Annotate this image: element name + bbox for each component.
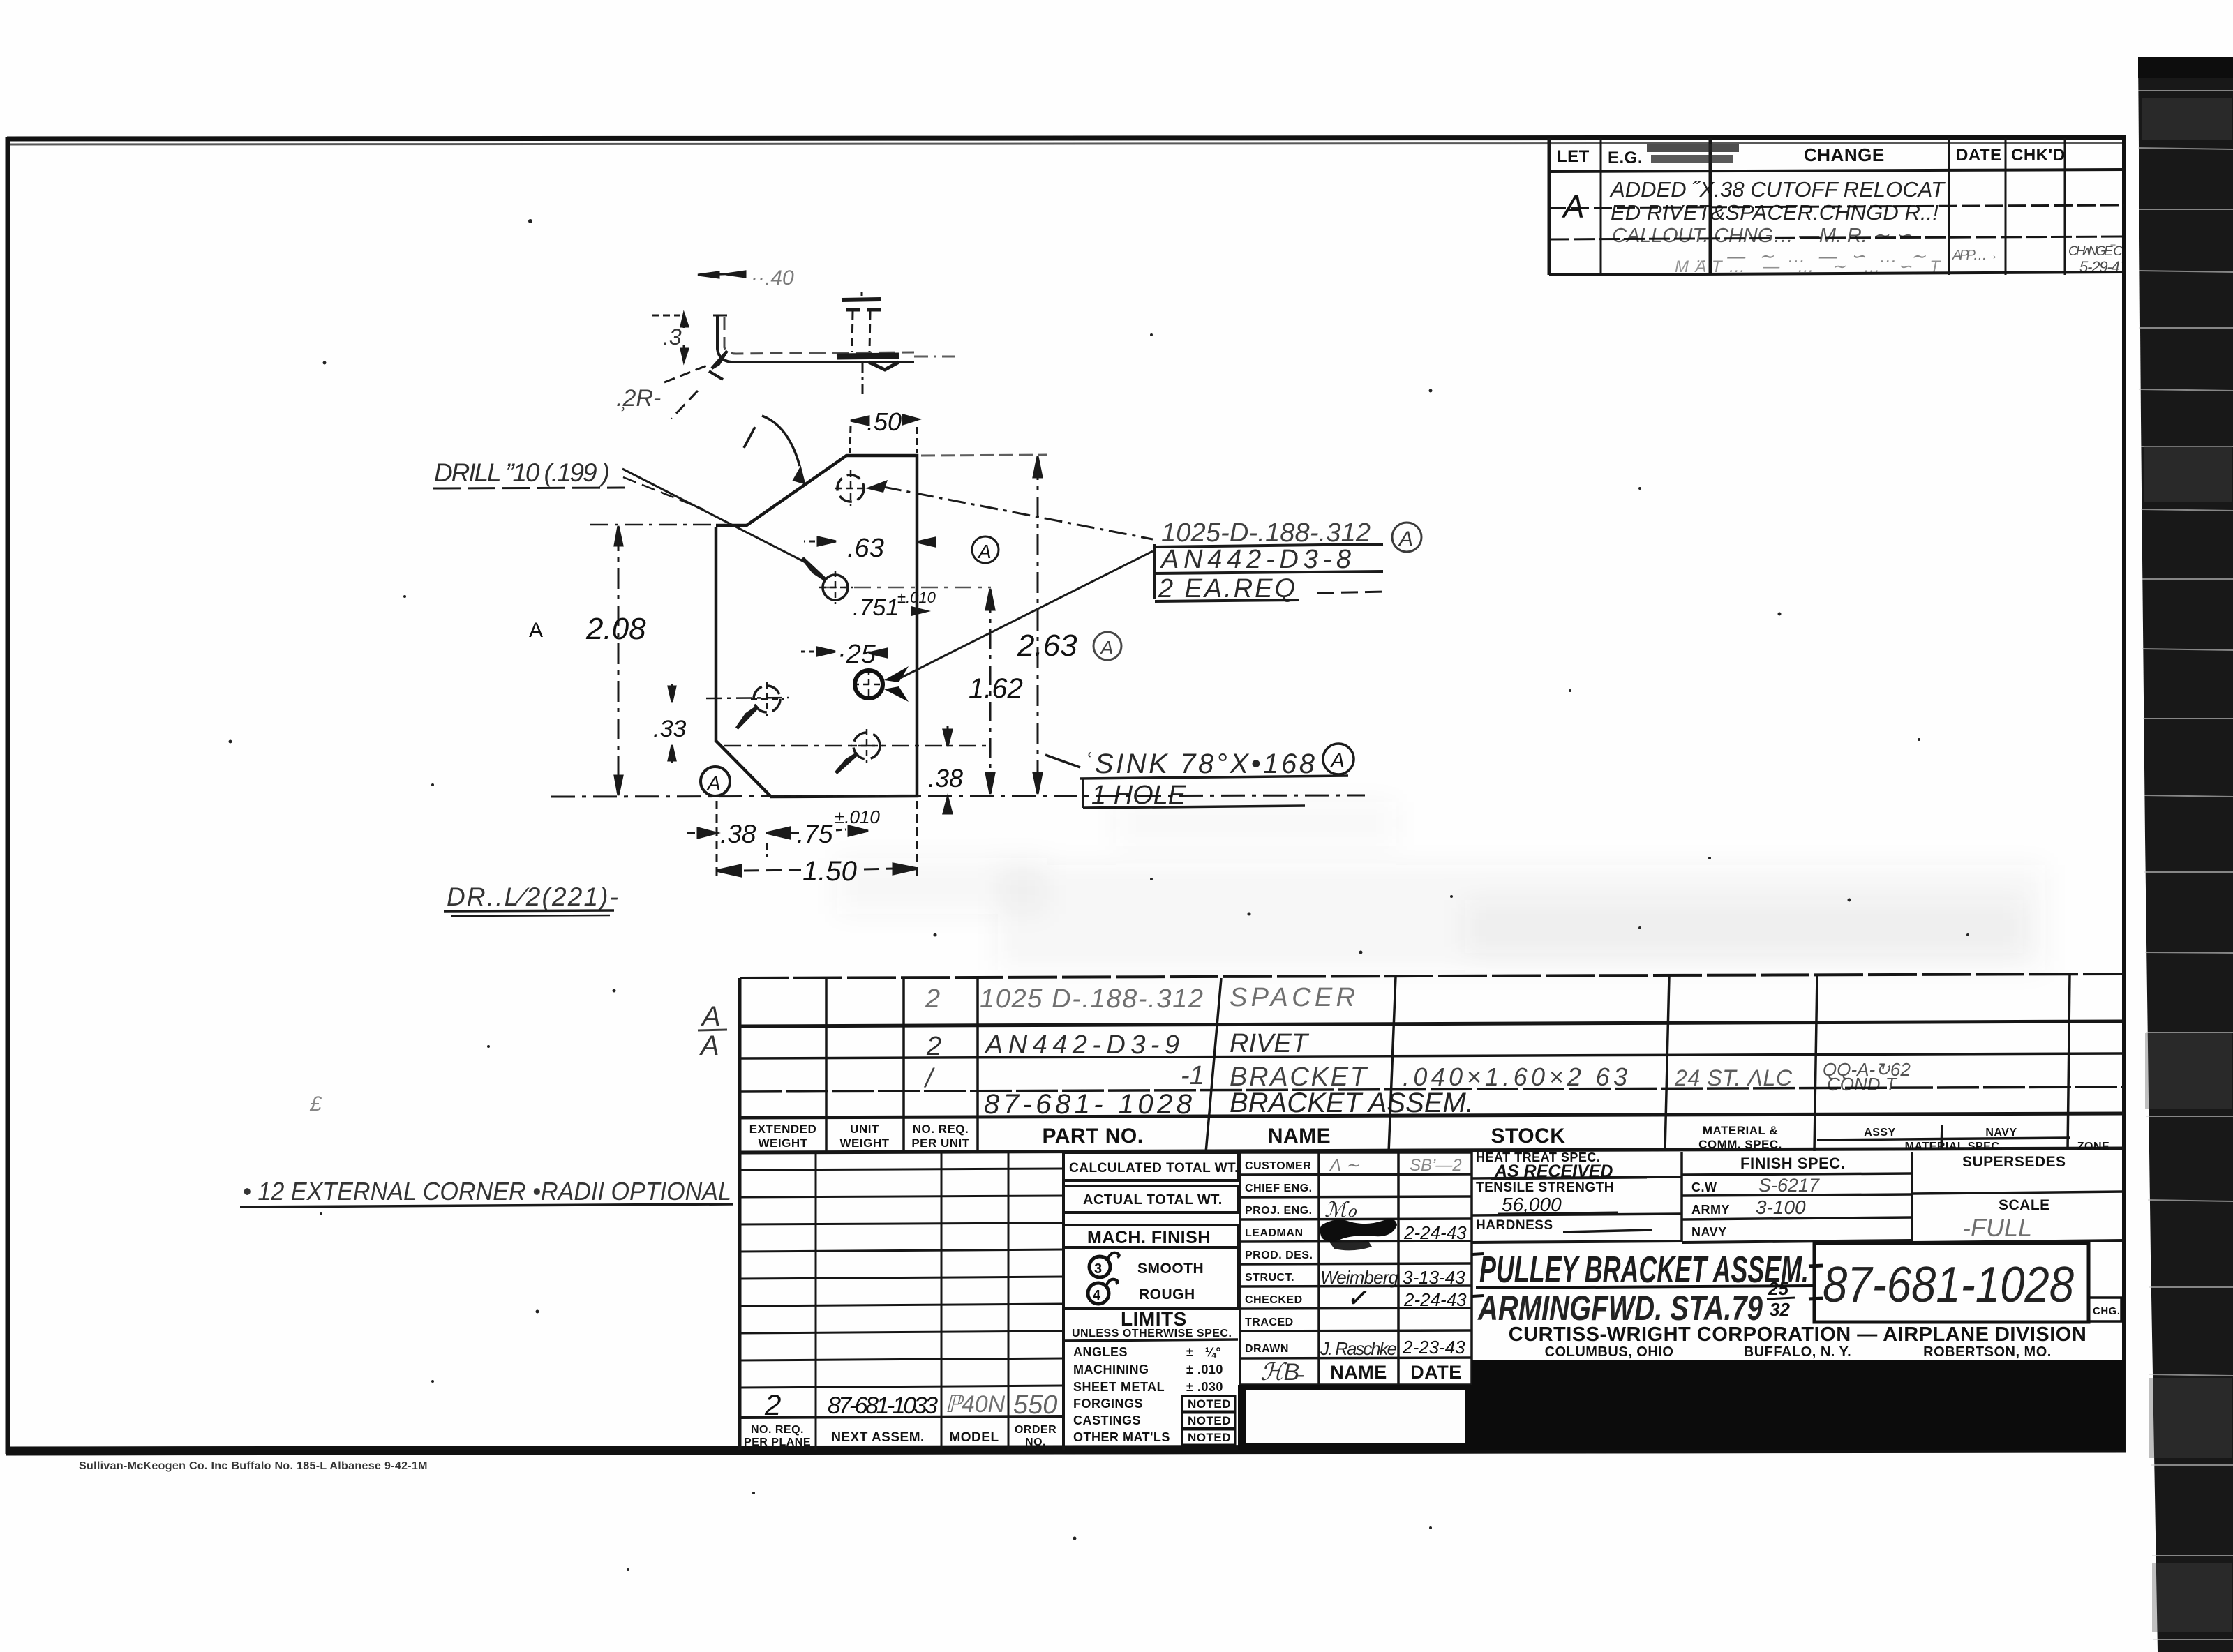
svg-text:A: A <box>699 1030 719 1061</box>
svg-text:.75: .75 <box>797 820 833 848</box>
svg-text:COND T: COND T <box>1827 1074 1898 1095</box>
svg-text:1025 D-.188-.312: 1025 D-.188-.312 <box>980 984 1203 1014</box>
svg-text:ANGLES: ANGLES <box>1073 1345 1128 1359</box>
svg-text:NO. REQ.: NO. REQ. <box>751 1424 804 1436</box>
svg-text:2.08: 2.08 <box>585 612 646 646</box>
svg-text:LIMITS: LIMITS <box>1121 1308 1187 1330</box>
svg-text:BRACKET ASSEM.: BRACKET ASSEM. <box>1230 1088 1474 1118</box>
svg-text:PROD. DES.: PROD. DES. <box>1245 1249 1313 1261</box>
svg-text:··.40: ··.40 <box>751 266 794 290</box>
svg-text:FORGINGS: FORGINGS <box>1073 1397 1143 1411</box>
svg-text:A: A <box>1398 527 1413 550</box>
svg-text:2-23-43: 2-23-43 <box>1402 1337 1465 1358</box>
svg-text:5-29-4ʿ: 5-29-4ʿ <box>2079 258 2124 276</box>
svg-text:ARMY: ARMY <box>1691 1203 1730 1217</box>
svg-text:A: A <box>1561 188 1585 225</box>
svg-text:MAT… — … ∼ … ∽ T: MAT… — … ∼ … ∽ T <box>1675 257 1941 276</box>
svg-text:SCALE: SCALE <box>1999 1197 2050 1213</box>
svg-text:550: 550 <box>1013 1390 1057 1420</box>
svg-text:ℙ40N: ℙ40N <box>945 1391 1006 1418</box>
svg-text:SMOOTH: SMOOTH <box>1137 1261 1204 1277</box>
svg-text:3-100: 3-100 <box>1756 1196 1806 1218</box>
svg-text:CHʌNGE‾C: CHʌNGE‾C <box>2068 244 2123 259</box>
svg-text:A: A <box>1329 749 1345 772</box>
svg-text:S-6217: S-6217 <box>1758 1175 1820 1196</box>
svg-text:HARDNESS: HARDNESS <box>1476 1218 1553 1233</box>
svg-text:J. Raschke: J. Raschke <box>1320 1338 1397 1359</box>
svg-text:DATE: DATE <box>1410 1362 1462 1383</box>
svg-text:Λ ∼: Λ ∼ <box>1329 1156 1359 1175</box>
svg-text:PER PLANE: PER PLANE <box>744 1436 811 1448</box>
svg-text:1025-D-.188-.312: 1025-D-.188-.312 <box>1161 518 1371 548</box>
svg-text:PER UNIT: PER UNIT <box>911 1136 969 1150</box>
svg-text:2-24-43: 2-24-43 <box>1403 1222 1467 1243</box>
svg-text:ACTUAL TOTAL WT.: ACTUAL TOTAL WT. <box>1083 1192 1223 1208</box>
svg-text:NAME: NAME <box>1268 1125 1331 1148</box>
svg-text:± ¼°: ± ¼° <box>1186 1345 1221 1359</box>
svg-text:2.63: 2.63 <box>1017 629 1077 663</box>
svg-text:.33: .33 <box>653 716 686 742</box>
svg-text:56,000: 56,000 <box>1502 1194 1562 1215</box>
svg-text:A: A <box>701 1001 721 1032</box>
svg-text:MATERIAL SPEC.: MATERIAL SPEC. <box>1905 1141 2003 1152</box>
svg-text:‐1: ‐1 <box>1181 1061 1204 1090</box>
svg-text:A: A <box>977 541 992 562</box>
svg-text:DATE: DATE <box>1956 146 2002 165</box>
svg-text:.̹2R‐: .̹2R‐ <box>616 385 661 412</box>
svg-text:CASTINGS: CASTINGS <box>1073 1413 1141 1427</box>
svg-text:UNLESS OTHERWISE SPEC.: UNLESS OTHERWISE SPEC. <box>1072 1328 1232 1339</box>
svg-text:RIVET: RIVET <box>1230 1029 1310 1058</box>
svg-text:.3: .3 <box>663 324 682 350</box>
svg-text:SΒ’—2: SΒ’—2 <box>1410 1156 1462 1175</box>
svg-text:BUFFALO, N. Y.: BUFFALO, N. Y. <box>1744 1344 1851 1360</box>
svg-text:87-681-1033: 87-681-1033 <box>828 1392 938 1419</box>
svg-text:COLUMBUS, OHIO: COLUMBUS, OHIO <box>1545 1344 1674 1360</box>
svg-text:AN442-D3-8: AN442-D3-8 <box>1160 545 1351 574</box>
svg-text:DRILL ”10 (.199 ): DRILL ”10 (.199 ) <box>434 458 610 487</box>
svg-text:87-681-1028: 87-681-1028 <box>1823 1257 2074 1313</box>
svg-text:NAME: NAME <box>1330 1362 1387 1383</box>
svg-text:C.W: C.W <box>1691 1180 1717 1194</box>
svg-text:2: 2 <box>925 984 940 1014</box>
svg-text:NEXT ASSEM.: NEXT ASSEM. <box>831 1430 925 1445</box>
svg-text:‐FULL: ‐FULL <box>1962 1213 2032 1242</box>
svg-text:.751: .751 <box>853 594 899 621</box>
svg-text:TRACED: TRACED <box>1245 1316 1294 1328</box>
svg-text:✓: ✓ <box>1347 1285 1367 1312</box>
svg-text:32: 32 <box>1770 1299 1790 1320</box>
svg-text:NOTED: NOTED <box>1188 1397 1231 1411</box>
svg-text:.50: .50 <box>867 407 902 436</box>
svg-text:.38: .38 <box>720 820 756 848</box>
svg-text:.38: .38 <box>928 764 963 793</box>
svg-text:87-681- 1028: 87-681- 1028 <box>984 1089 1193 1120</box>
svg-text:WEIGHT: WEIGHT <box>759 1136 808 1150</box>
svg-text:DR..L⁄2(221)‐: DR..L⁄2(221)‐ <box>447 883 618 911</box>
svg-text:A: A <box>706 772 721 794</box>
svg-text:A: A <box>1099 637 1114 659</box>
svg-text:EXTENDED: EXTENDED <box>749 1122 817 1136</box>
svg-text:25: 25 <box>1768 1278 1788 1299</box>
svg-text:MACH. FINISH: MACH. FINISH <box>1087 1228 1211 1247</box>
svg-text:CURTISS-WRIGHT CORPORATION — A: CURTISS-WRIGHT CORPORATION — AIRPLANE DI… <box>1509 1323 2087 1346</box>
svg-text:DRAWN: DRAWN <box>1245 1343 1289 1355</box>
svg-text:FINISH SPEC.: FINISH SPEC. <box>1740 1155 1845 1172</box>
svg-text:ORDER: ORDER <box>1015 1424 1056 1436</box>
svg-text:3-13-43: 3-13-43 <box>1403 1267 1465 1288</box>
svg-text:WEIGHT: WEIGHT <box>840 1136 890 1150</box>
svg-text:• 12 EXTERNAL CORNER •RADII OP: • 12 EXTERNAL CORNER •RADII OPTIONAL <box>243 1177 731 1206</box>
svg-text:NO.: NO. <box>1025 1436 1046 1448</box>
svg-text:± .010: ± .010 <box>1186 1362 1223 1376</box>
svg-text:CALCULATED TOTAL WT.: CALCULATED TOTAL WT. <box>1069 1161 1239 1176</box>
svg-text:ASSY: ASSY <box>1864 1127 1896 1139</box>
svg-text:£: £ <box>309 1092 322 1116</box>
svg-text:STRUCT.: STRUCT. <box>1245 1272 1294 1284</box>
svg-text:ZONE: ZONE <box>2077 1141 2109 1152</box>
svg-text:ROUGH: ROUGH <box>1139 1286 1195 1302</box>
svg-text:± .030: ± .030 <box>1186 1380 1223 1394</box>
svg-text:OTHER MAT'LS: OTHER MAT'LS <box>1073 1430 1170 1444</box>
svg-text:±.010: ±.010 <box>835 806 880 827</box>
svg-text:CALLOUT. CHNG… —M. R. ∼ ∽: CALLOUT. CHNG… —M. R. ∼ ∽ <box>1612 225 1912 247</box>
svg-text:APP…→: APP…→ <box>1952 248 1999 263</box>
svg-text:2: 2 <box>764 1388 781 1421</box>
svg-text:PART NO.: PART NO. <box>1042 1125 1143 1148</box>
svg-text:NAVY: NAVY <box>1691 1225 1727 1239</box>
svg-text:NOTED: NOTED <box>1188 1431 1231 1444</box>
svg-text:COMM. SPEC.: COMM. SPEC. <box>1698 1138 1782 1151</box>
svg-text:MATERIAL &: MATERIAL & <box>1703 1124 1778 1137</box>
svg-text:LET: LET <box>1557 147 1590 166</box>
svg-text:TENSILE STRENGTH: TENSILE STRENGTH <box>1476 1180 1614 1195</box>
svg-text:NO. REQ.: NO. REQ. <box>913 1122 969 1136</box>
svg-text:MACHINING: MACHINING <box>1073 1362 1149 1376</box>
svg-text:STOCK: STOCK <box>1491 1125 1566 1148</box>
svg-text:ADDED ˝X.38 CUTOFF RELOCAT: ADDED ˝X.38 CUTOFF RELOCAT <box>1609 177 1946 202</box>
svg-text:NAVY: NAVY <box>1985 1127 2017 1139</box>
svg-text:24 ST. ΛLC: 24 ST. ΛLC <box>1674 1065 1793 1090</box>
svg-text:ARMINGFWD. STA.79: ARMINGFWD. STA.79 <box>1477 1289 1763 1328</box>
svg-text:ROBERTSON, MO.: ROBERTSON, MO. <box>1923 1344 2052 1360</box>
svg-text:CHG.: CHG. <box>2093 1305 2121 1317</box>
svg-text:Sullivan-McKeogen Co. Inc B: Sullivan-McKeogen Co. Inc Buffalo No. 18… <box>79 1460 428 1472</box>
svg-text:E.G.: E.G. <box>1608 149 1643 167</box>
svg-text:AN442-D3-9: AN442-D3-9 <box>984 1030 1179 1060</box>
svg-text:CHK'D: CHK'D <box>2011 146 2066 165</box>
svg-text:PROJ. ENG.: PROJ. ENG. <box>1245 1205 1313 1217</box>
svg-text:1.62: 1.62 <box>969 673 1023 704</box>
svg-text:LEADMAN: LEADMAN <box>1245 1227 1304 1239</box>
svg-text:A: A <box>529 619 543 642</box>
svg-text:CHIEF ENG.: CHIEF ENG. <box>1245 1182 1313 1194</box>
svg-text:ℳℴ: ℳℴ <box>1324 1199 1357 1222</box>
svg-text:CHANGE: CHANGE <box>1804 144 1885 165</box>
svg-text:SHEET METAL: SHEET METAL <box>1073 1380 1165 1394</box>
svg-text:4: 4 <box>1093 1288 1101 1303</box>
svg-text:·25: ·25 <box>837 640 876 669</box>
svg-text:PULLEY BRACKET ASSEM.: PULLEY BRACKET ASSEM. <box>1479 1249 1809 1291</box>
svg-text:CUSTOMER: CUSTOMER <box>1245 1160 1311 1172</box>
svg-text:2-24-43: 2-24-43 <box>1403 1289 1467 1310</box>
svg-text:NOTED: NOTED <box>1188 1414 1231 1427</box>
svg-text:ED RIVET&SPACER.CHNGD R..!: ED RIVET&SPACER.CHNGD R..! <box>1611 200 1939 225</box>
svg-text:.63: .63 <box>847 534 884 563</box>
svg-text:2: 2 <box>926 1032 941 1061</box>
svg-text:ℋB̵: ℋB̵ <box>1260 1359 1304 1386</box>
svg-text:MODEL: MODEL <box>949 1430 999 1445</box>
svg-text:SUPERSEDES: SUPERSEDES <box>1962 1154 2066 1170</box>
svg-text:±.010: ±.010 <box>897 589 936 606</box>
svg-text:3: 3 <box>1094 1261 1103 1277</box>
svg-text:UNIT: UNIT <box>850 1122 879 1136</box>
svg-text:CHECKED: CHECKED <box>1245 1294 1303 1306</box>
